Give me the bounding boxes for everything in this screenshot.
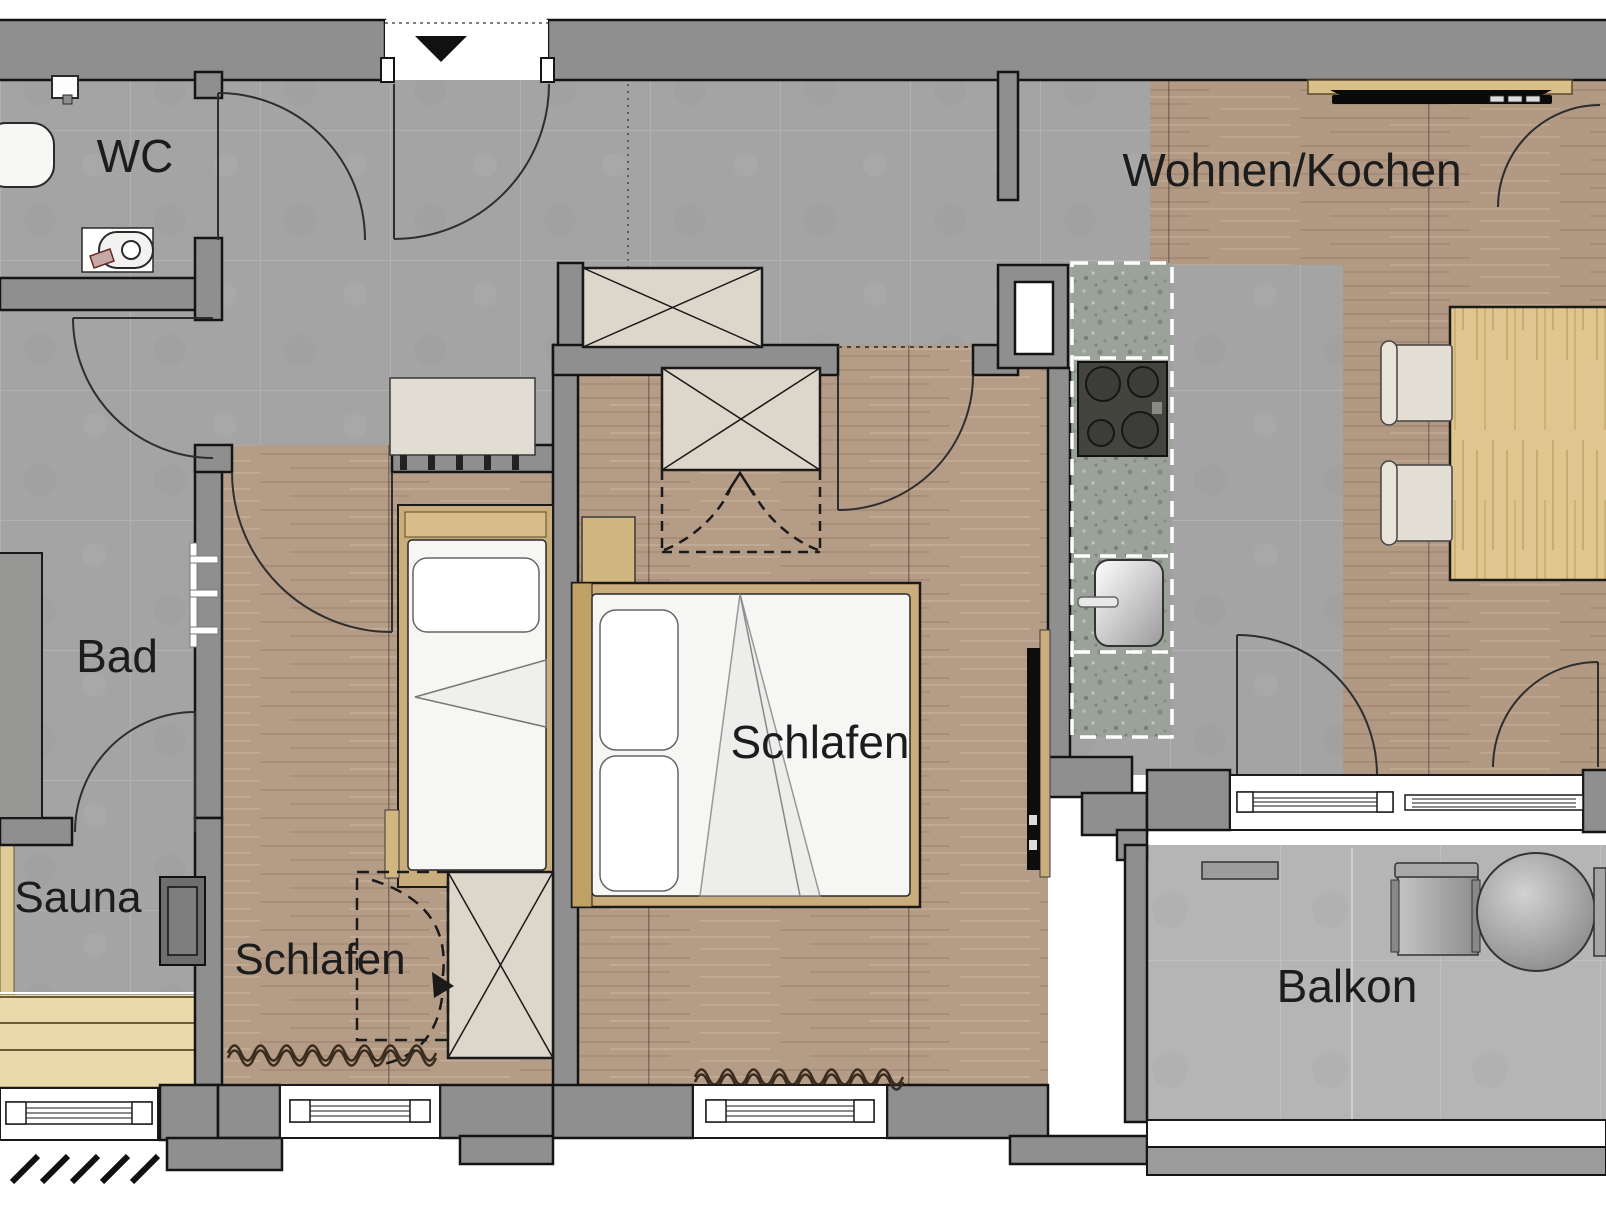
balcony-label: Balkon — [1277, 960, 1418, 1012]
balcony-step-wall-2 — [1082, 793, 1147, 835]
sauna-heater-inner — [168, 887, 197, 955]
bathroom-vanity — [0, 553, 42, 818]
kitchen — [1072, 263, 1172, 737]
bedroom-master-label: Schlafen — [730, 716, 909, 768]
top-wall-right — [548, 20, 1606, 80]
living-tv — [1330, 90, 1552, 104]
kitchen-tile-zone2 — [1150, 265, 1343, 775]
master-wardrobe — [662, 368, 820, 470]
wall-stub-hall-wardrobe — [558, 263, 583, 348]
balcony-chair — [1391, 863, 1480, 955]
entrance — [381, 20, 554, 82]
wall-stub-hall-kitchen — [998, 72, 1018, 200]
single-bed — [385, 505, 553, 887]
exterior-hatch-marks — [12, 1156, 158, 1182]
wall-left-column-b — [195, 238, 222, 320]
utility-shaft-opening — [1015, 282, 1053, 354]
pier-bedroom2-left — [218, 1085, 280, 1138]
single-bed-pillow — [413, 558, 539, 632]
balcony-parapet — [1147, 1147, 1606, 1175]
double-bed-pillow-1 — [600, 610, 678, 750]
bedroom-tv-port-1 — [1029, 815, 1037, 825]
master-nightstand — [582, 517, 635, 583]
balcony-left-wall — [1125, 845, 1147, 1122]
wall-right-of-balcony-door — [1583, 770, 1606, 832]
wc-washbasin — [0, 123, 54, 187]
wc-toilet — [82, 228, 153, 272]
cooktop-control — [1152, 402, 1162, 414]
balcony-table — [1477, 853, 1595, 971]
floorplan-canvas: WC Bad Sauna Schlafen Schlafen Wohnen/Ko… — [0, 0, 1606, 1205]
cooktop — [1078, 362, 1167, 456]
wall-left-of-balcony-door — [1147, 770, 1230, 830]
hallway-wardrobe — [583, 268, 762, 347]
balcony-step-wall-1 — [1048, 757, 1132, 797]
bathroom-label: Bad — [76, 630, 158, 682]
balcony-chair-cropped — [1594, 868, 1606, 956]
balcony-door-panel-1 — [1237, 792, 1393, 812]
pier-sauna-right — [160, 1085, 218, 1140]
dining-chair-1 — [1381, 341, 1452, 425]
wc-floor — [0, 72, 215, 310]
double-bed-pillow-2 — [600, 756, 678, 891]
wc-label: WC — [97, 130, 174, 182]
exterior-step-3 — [1010, 1136, 1147, 1164]
entrance-opening — [385, 20, 548, 80]
entrance-jamb-right — [541, 58, 554, 82]
top-wall-left — [0, 20, 385, 80]
wall-bad-sauna — [0, 818, 72, 845]
balcony-door-band — [1230, 775, 1583, 830]
bedroom-tv — [1027, 648, 1040, 870]
wall-hall-bedroom2-a — [195, 445, 232, 472]
wall-master-kitchen — [1048, 368, 1070, 760]
exterior-step-1 — [167, 1138, 282, 1170]
single-bed-shelf — [385, 810, 399, 878]
sauna-bench-side — [0, 840, 14, 995]
dining-table — [1450, 307, 1606, 580]
sauna-bench-planks — [0, 995, 212, 1090]
bedroom-small-label: Schlafen — [234, 935, 405, 984]
pier-master-left — [553, 1085, 693, 1138]
balcony-bench — [1202, 862, 1278, 879]
wc-paper-holder-clip — [63, 95, 72, 104]
window-sauna — [0, 1088, 158, 1140]
towel-radiator — [190, 543, 218, 647]
wall-left-column-c — [195, 455, 222, 818]
kitchen-faucet — [1078, 597, 1118, 607]
window-bedroom-master — [693, 1085, 887, 1138]
entrance-jamb-left — [381, 58, 394, 82]
sauna-label: Sauna — [14, 873, 142, 922]
pier-master-right — [887, 1085, 1048, 1138]
wall-wc-bad — [0, 278, 215, 310]
pier-bedroom2-right — [440, 1085, 553, 1138]
living-kitchen-label: Wohnen/Kochen — [1122, 144, 1461, 196]
exterior-step-2 — [460, 1136, 553, 1164]
balcony-door-panel-2 — [1405, 795, 1583, 810]
floorplan-svg: WC Bad Sauna Schlafen Schlafen Wohnen/Ko… — [0, 0, 1606, 1205]
bedroom-small-wardrobe — [448, 872, 553, 1058]
kitchen-counter — [1072, 263, 1172, 737]
bedroom-tv-port-2 — [1029, 840, 1037, 850]
bedroom-tv-board — [1040, 630, 1050, 877]
balcony-railing-inner — [1147, 1120, 1606, 1147]
window-bedroom-small — [280, 1085, 440, 1138]
dining-chair-2 — [1381, 461, 1452, 545]
